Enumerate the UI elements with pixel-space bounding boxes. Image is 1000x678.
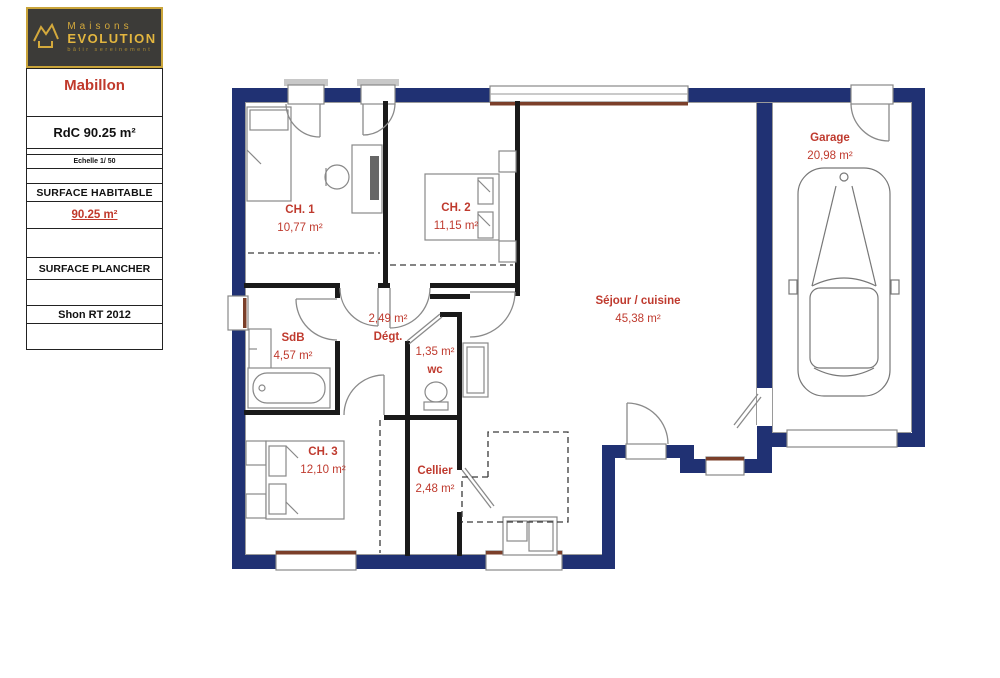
nightstand [499,151,516,172]
room-label-degt: 2,49 m² Dégt. [369,310,408,347]
nightstand [246,441,266,465]
door-cellier [462,468,494,508]
floor-plan-drawing [0,0,1000,678]
room-label-sejour: Séjour / cuisine 45,38 m² [596,292,681,329]
car-garage [789,168,899,396]
floor-plan: CH. 1 10,77 m² CH. 2 11,15 m² Garage 20,… [0,0,1000,678]
room-label-ch3: CH. 3 12,10 m² [300,443,345,480]
door-ch3 [344,375,384,415]
door-window-ch2 [363,104,395,135]
bathtub-sdb [248,368,330,408]
room-label-ch2: CH. 2 11,15 m² [434,199,479,236]
closet-duct [463,343,488,397]
room-label-wc: 1,35 m² wc [416,343,455,380]
room-label-ch1: CH. 1 10,77 m² [277,201,322,238]
entry-door-opening [626,444,666,459]
toilet-wc [424,382,448,410]
nightstand [499,241,516,262]
garage-door [787,430,897,447]
room-label-sdb: SdB 4,57 m² [274,329,313,366]
nightstand [246,494,266,518]
window-sill [276,551,356,555]
washbasin-sdb [249,329,271,369]
door-garage-service [851,104,889,141]
kitchen-sink-unit [503,517,557,555]
service-door-garage [851,85,893,104]
door-sejour [470,292,515,337]
room-label-garage: Garage 20,98 m² [807,129,852,166]
furniture [246,107,899,555]
window-sill [243,298,247,328]
bed-ch1 [247,107,291,201]
desk-ch1 [325,145,382,213]
page: { "sidebar": { "logo": { "brand_line1": … [0,0,1000,678]
window-sill [706,457,744,461]
door-entry [627,403,668,444]
window-ch1 [288,85,324,104]
window-ch2 [361,85,395,104]
room-label-cellier: Cellier 2,48 m² [416,462,455,499]
door-wc [407,314,442,344]
